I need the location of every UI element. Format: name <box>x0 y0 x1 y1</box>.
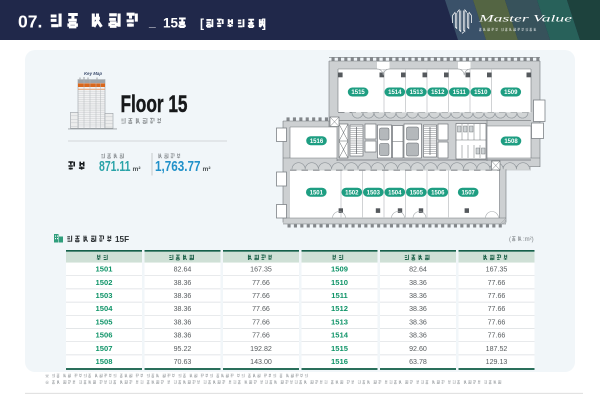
svg-text:1507: 1507 <box>462 190 476 196</box>
svg-text:192.82: 192.82 <box>250 345 272 353</box>
svg-text:1511: 1511 <box>453 90 467 96</box>
svg-text:82.64: 82.64 <box>174 266 192 274</box>
svg-text:1512: 1512 <box>431 90 445 96</box>
svg-text:1513: 1513 <box>410 90 424 96</box>
svg-text:38.36: 38.36 <box>409 279 427 287</box>
svg-text:1505: 1505 <box>96 317 114 326</box>
svg-text:1511: 1511 <box>331 291 348 300</box>
svg-text:1501: 1501 <box>310 190 324 196</box>
svg-text:1514: 1514 <box>388 90 402 96</box>
svg-text:15F: 15F <box>115 235 129 244</box>
svg-text:1513: 1513 <box>331 317 348 326</box>
svg-text:38.36: 38.36 <box>174 305 192 313</box>
svg-text:77.66: 77.66 <box>252 305 270 313</box>
svg-text:1503: 1503 <box>367 190 381 196</box>
svg-text:1501: 1501 <box>96 265 114 274</box>
svg-text:77.66: 77.66 <box>488 305 506 313</box>
svg-text:38.36: 38.36 <box>409 305 427 313</box>
svg-text:77.66: 77.66 <box>252 292 270 300</box>
svg-text:92.60: 92.60 <box>409 345 427 353</box>
svg-text:77.66: 77.66 <box>488 332 506 340</box>
svg-text:Floor 15: Floor 15 <box>121 91 188 118</box>
svg-text:77.66: 77.66 <box>488 318 506 326</box>
svg-text:70.63: 70.63 <box>174 358 192 366</box>
svg-text:1506: 1506 <box>431 190 445 196</box>
svg-text:38.36: 38.36 <box>409 318 427 326</box>
svg-text:1504: 1504 <box>96 304 114 313</box>
svg-text:(: ( <box>509 237 511 243</box>
svg-text:※: ※ <box>45 374 49 380</box>
svg-text:1515: 1515 <box>351 90 365 96</box>
svg-text:m²: m² <box>133 166 142 173</box>
svg-text:※: ※ <box>45 380 49 386</box>
svg-text:187.52: 187.52 <box>486 345 508 353</box>
svg-text:871.11: 871.11 <box>99 159 131 175</box>
svg-text:1516: 1516 <box>331 357 348 366</box>
svg-text:[: [ <box>200 17 204 31</box>
svg-text:38.36: 38.36 <box>409 332 427 340</box>
svg-text:1509: 1509 <box>504 90 518 96</box>
svg-text:77.66: 77.66 <box>252 332 270 340</box>
svg-text::m²): :m²) <box>523 237 534 243</box>
svg-text:1512: 1512 <box>331 304 348 313</box>
svg-text:63.78: 63.78 <box>409 358 427 366</box>
svg-text:38.36: 38.36 <box>174 279 192 287</box>
svg-text:38.36: 38.36 <box>174 318 192 326</box>
svg-text:1508: 1508 <box>96 357 113 366</box>
svg-text:15: 15 <box>163 16 179 31</box>
svg-text:1503: 1503 <box>96 291 113 300</box>
svg-text:167.35: 167.35 <box>486 266 508 274</box>
svg-text:Key Map: Key Map <box>84 71 102 76</box>
svg-text:1515: 1515 <box>331 344 349 353</box>
svg-text:1514: 1514 <box>331 331 349 340</box>
svg-text:_: _ <box>148 15 156 29</box>
svg-text:07.: 07. <box>18 12 42 32</box>
svg-text:77.66: 77.66 <box>488 279 506 287</box>
svg-text:1505: 1505 <box>410 190 424 196</box>
svg-text:38.36: 38.36 <box>174 292 192 300</box>
svg-text:m²: m² <box>203 166 212 173</box>
svg-text:95.22: 95.22 <box>174 345 192 353</box>
svg-text:1508: 1508 <box>504 139 518 145</box>
svg-text:1,763.77: 1,763.77 <box>155 159 201 175</box>
svg-text:1502: 1502 <box>345 190 359 196</box>
svg-text:1510: 1510 <box>474 90 488 96</box>
svg-text:1504: 1504 <box>388 190 402 196</box>
svg-text:77.66: 77.66 <box>252 318 270 326</box>
svg-text:1506: 1506 <box>96 331 113 340</box>
svg-text:38.36: 38.36 <box>174 332 192 340</box>
svg-text:129.13: 129.13 <box>486 358 508 366</box>
svg-text:143.00: 143.00 <box>250 358 272 366</box>
svg-text:77.66: 77.66 <box>252 279 270 287</box>
svg-text:1507: 1507 <box>96 344 113 353</box>
svg-text:Master Value: Master Value <box>477 14 573 25</box>
svg-text:1516: 1516 <box>310 139 324 145</box>
svg-text:1509: 1509 <box>331 265 348 274</box>
svg-text:82.64: 82.64 <box>409 266 427 274</box>
svg-text:77.66: 77.66 <box>488 292 506 300</box>
svg-text:1502: 1502 <box>96 278 113 287</box>
svg-text:167.35: 167.35 <box>250 266 272 274</box>
svg-text:]: ] <box>262 17 266 31</box>
svg-text:38.36: 38.36 <box>409 292 427 300</box>
svg-text:1510: 1510 <box>331 278 348 287</box>
